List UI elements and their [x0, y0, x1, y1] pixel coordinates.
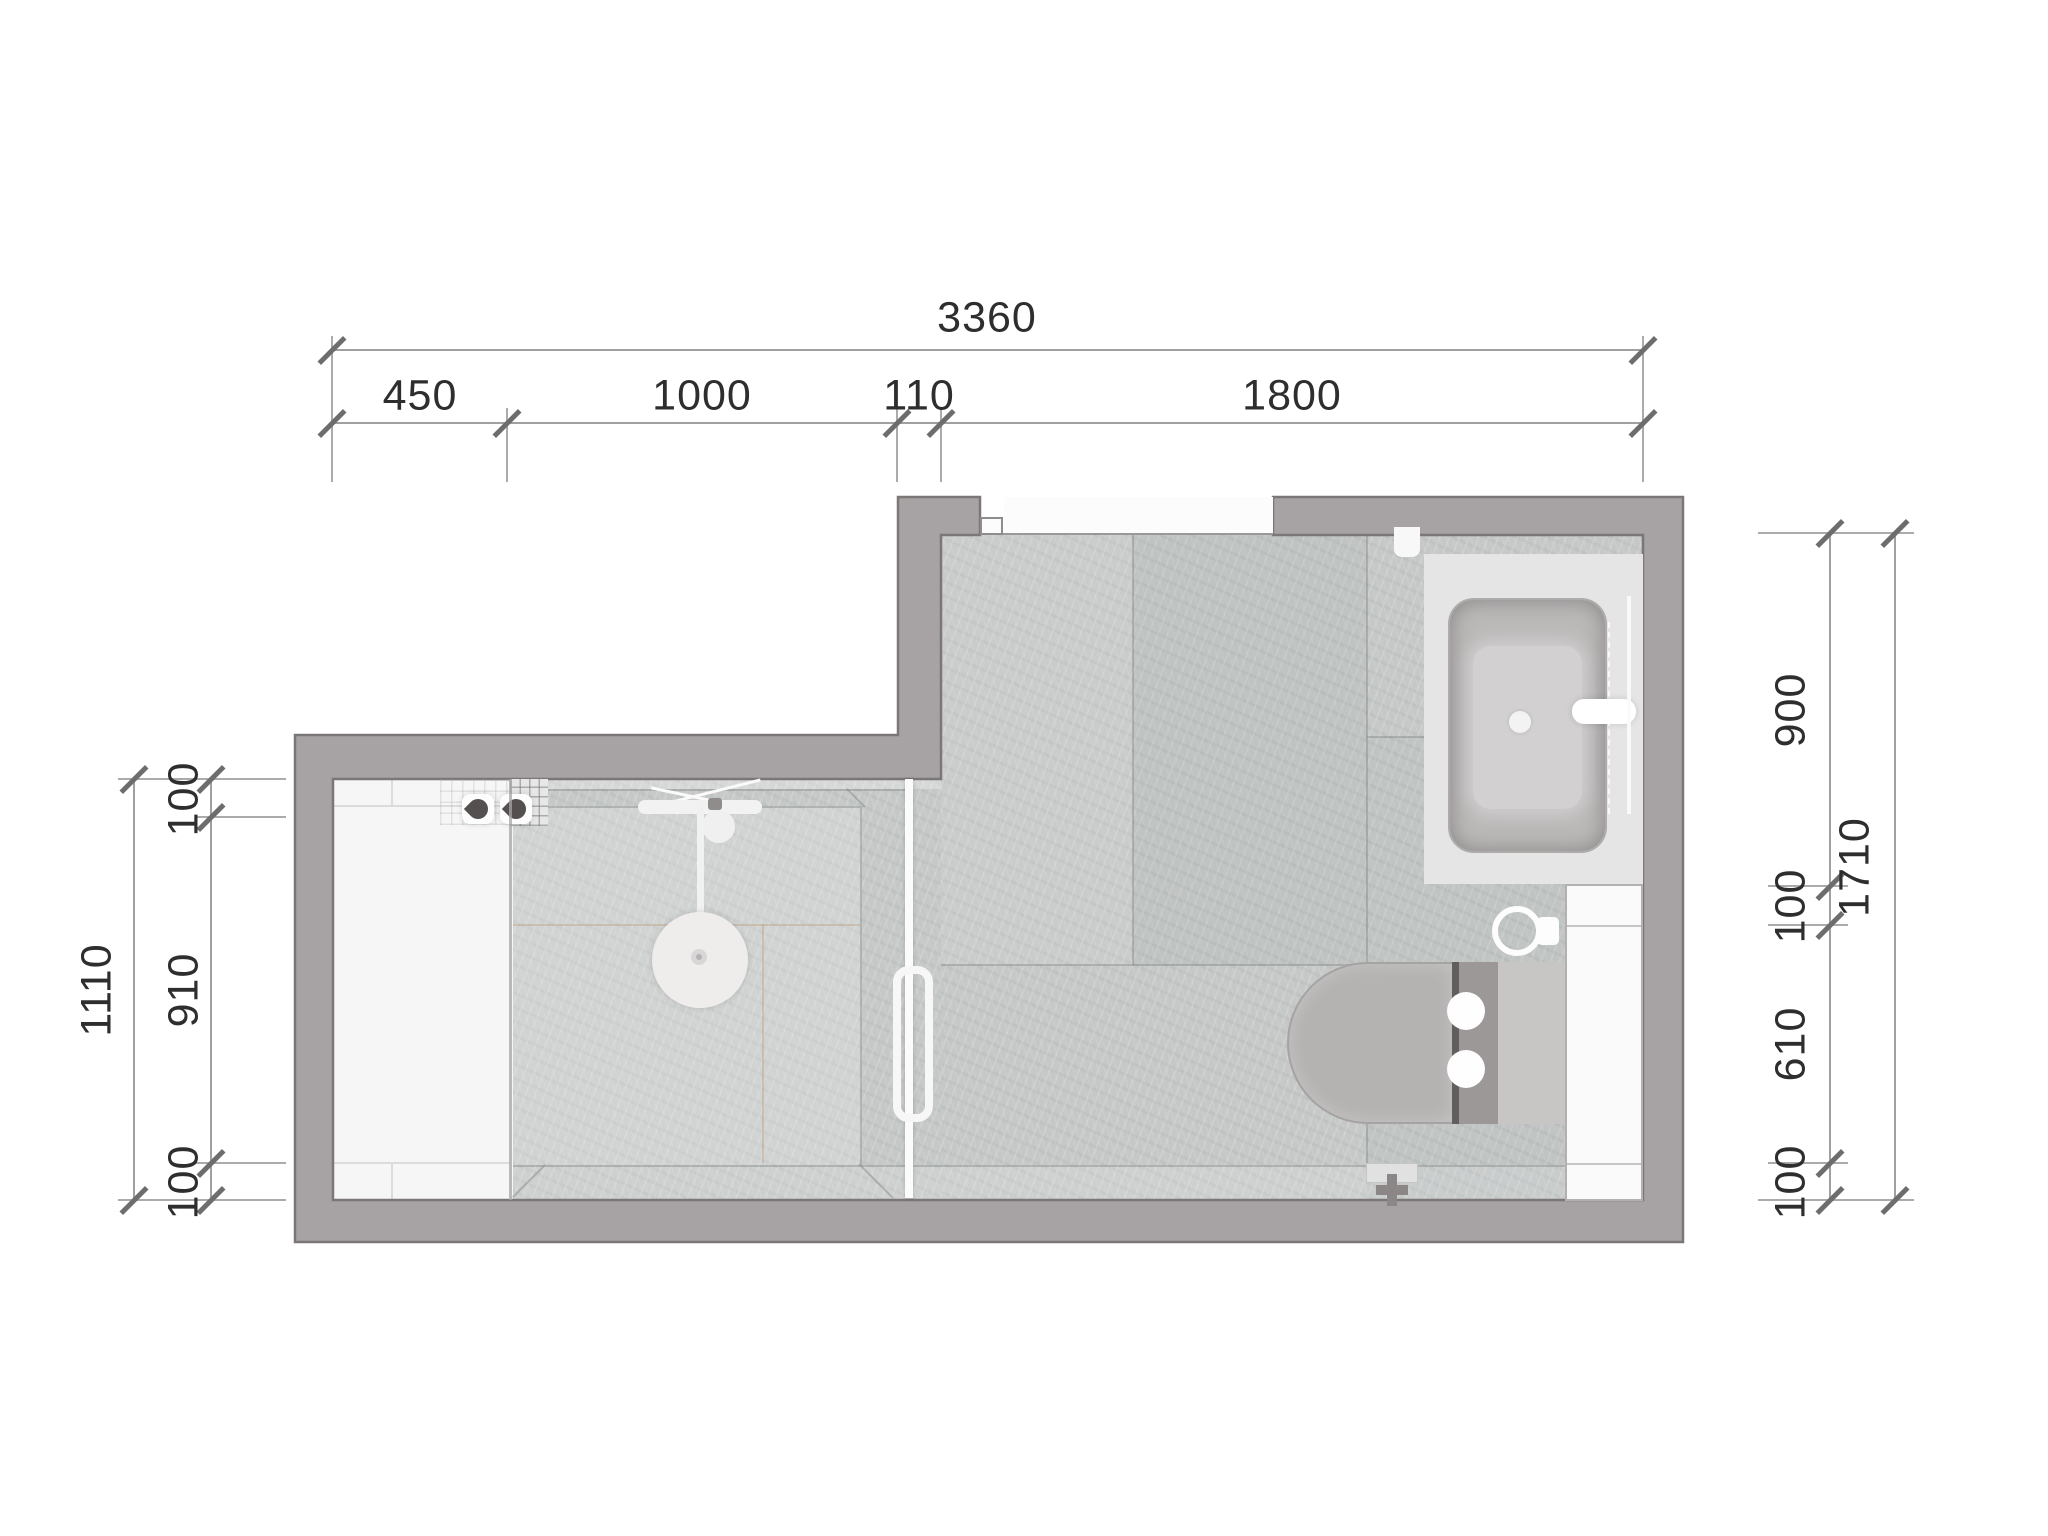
dim-label-right-seg-3: 610	[1770, 1007, 1813, 1082]
shower-stem	[697, 800, 704, 918]
mixer-plate	[462, 794, 494, 824]
dim-label-left-seg-2: 910	[163, 953, 206, 1028]
door-threshold-edge	[1003, 533, 1273, 535]
sealant-dashed-line	[1608, 622, 1610, 814]
walls	[0, 0, 2048, 1536]
toilet-bowl	[1287, 962, 1455, 1124]
toilet-mount-plate	[1498, 962, 1565, 1124]
tub-drain-icon	[1509, 711, 1531, 733]
dim-line-top-segments	[332, 422, 1643, 424]
wall-spout-icon	[1394, 527, 1420, 557]
ext-line	[1642, 336, 1644, 482]
door-opening	[1004, 497, 1273, 533]
toilet-seat-divider	[1452, 962, 1459, 1124]
dim-label-top-total: 3360	[937, 297, 1037, 340]
floor-drain-icon	[1387, 1174, 1397, 1206]
glass-partition	[509, 779, 512, 1200]
door-jamb	[980, 517, 1003, 535]
side-unit-divider	[1567, 1163, 1641, 1165]
dim-label-left-seg-3: 100	[163, 1145, 206, 1220]
dim-label-top-seg-1: 450	[383, 375, 458, 418]
side-unit-divider	[1567, 925, 1641, 927]
mixer-plate	[500, 794, 532, 824]
dim-line-top-total	[332, 349, 1643, 351]
dim-label-right-total: 1710	[1834, 817, 1877, 917]
towel-ring-icon	[1492, 906, 1542, 956]
dim-label-top-seg-3: 110	[883, 375, 955, 418]
shower-head-dot-icon	[696, 954, 702, 960]
dim-label-right-seg-1: 900	[1770, 673, 1813, 748]
towel-ring-bracket	[1537, 917, 1559, 945]
floor-plan-canvas: 3360 450 1000 110 1800 100 910 100 1110 …	[0, 0, 2048, 1536]
mixer-handle-right-icon	[502, 795, 530, 823]
shower-arm-clamp-icon	[708, 798, 722, 810]
mixer-handle-left-icon	[464, 795, 492, 823]
dim-line-left-segments	[210, 779, 212, 1200]
ext-line	[331, 336, 333, 482]
towel-rail	[1627, 596, 1631, 814]
flush-button-icon	[1447, 1050, 1485, 1088]
dim-label-left-total: 1110	[76, 943, 119, 1036]
dim-label-top-seg-2: 1000	[652, 375, 752, 418]
dim-label-left-seg-1: 100	[163, 762, 206, 837]
hand-shower-holder-icon	[702, 810, 735, 843]
side-unit	[1565, 884, 1643, 1201]
dim-line-right-total	[1894, 533, 1896, 1200]
toilet-cistern	[1459, 962, 1498, 1124]
glass-door-handle	[893, 966, 933, 1122]
dim-label-right-seg-2: 100	[1770, 869, 1813, 944]
dim-label-top-seg-4: 1800	[1242, 375, 1342, 418]
dim-label-right-seg-4: 100	[1770, 1145, 1813, 1220]
flush-button-icon	[1447, 992, 1485, 1030]
dim-line-left-total	[133, 779, 135, 1200]
